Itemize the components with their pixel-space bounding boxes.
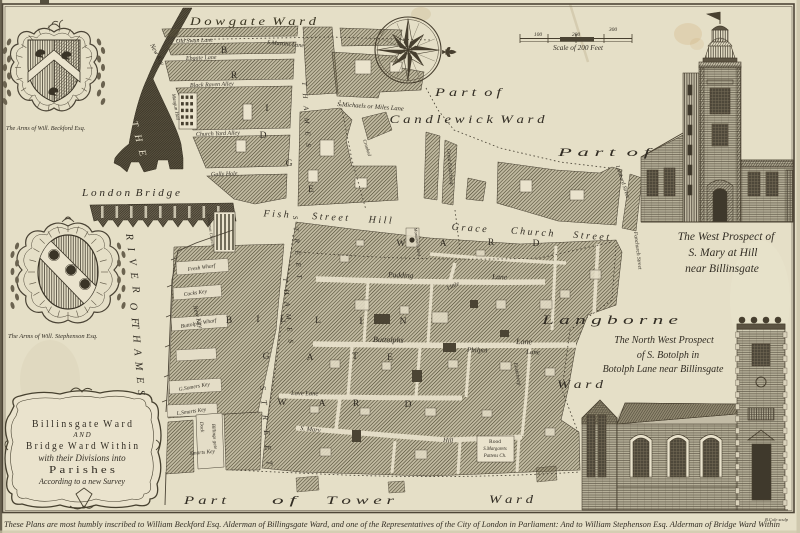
svg-text:L: L <box>315 316 321 326</box>
svg-text:I: I <box>256 315 259 325</box>
svg-text:Gully Hole: Gully Hole <box>211 171 238 178</box>
svg-text:R: R <box>353 399 360 409</box>
svg-text:R: R <box>231 71 238 81</box>
svg-text:B: B <box>226 316 232 326</box>
svg-text:F i s h: F i s h <box>262 208 289 220</box>
svg-text:The Arms of Will. Beckford Esq: The Arms of Will. Beckford Esq. <box>6 125 85 132</box>
svg-text:Pattens Ch.: Pattens Ch. <box>483 454 506 459</box>
svg-text:B i l l i n s g a t e W a r d: B i l l i n s g a t e W a r d <box>32 418 132 430</box>
svg-text:T o w e r: T o w e r <box>326 493 395 507</box>
svg-text:of S. Botolph in: of S. Botolph in <box>637 350 699 361</box>
svg-text:Ebgate Lane: Ebgate Lane <box>185 55 217 62</box>
svg-text:R: R <box>488 238 495 248</box>
svg-text:W: W <box>278 398 287 408</box>
svg-text:P a r t o f: P a r t o f <box>434 85 504 99</box>
svg-text:The West Prospect of: The West Prospect of <box>678 231 776 243</box>
svg-text:A: A <box>307 353 314 363</box>
svg-text:with their Divisions into: with their Divisions into <box>38 453 126 463</box>
svg-text:G: G <box>286 159 293 169</box>
svg-text:S.Margarets: S.Margarets <box>483 447 507 452</box>
svg-text:The Arms of Will. Stephenson E: The Arms of Will. Stephenson Esq. <box>8 333 98 340</box>
svg-text:W a r d: W a r d <box>557 377 604 391</box>
svg-text:D: D <box>405 400 412 410</box>
svg-text:Pudding: Pudding <box>387 270 414 280</box>
svg-text:H i l l: H i l l <box>367 214 392 226</box>
svg-text:D: D <box>533 239 540 249</box>
svg-text:E: E <box>308 185 314 195</box>
svg-text:W a r d: W a r d <box>489 492 534 506</box>
svg-text:I: I <box>359 317 362 327</box>
svg-text:L o n d o n B r i d g e: L o n d o n B r i d g e <box>81 188 181 199</box>
svg-text:N: N <box>400 317 407 327</box>
svg-text:The North West Prospect: The North West Prospect <box>614 335 714 346</box>
svg-text:Lane: Lane <box>515 337 533 346</box>
svg-text:L a n g b o r n e: L a n g b o r n e <box>540 312 678 327</box>
svg-text:Buttolphs: Buttolphs <box>373 335 404 345</box>
svg-text:S. Mary at Hill: S. Mary at Hill <box>689 247 758 259</box>
svg-text:S t r e e t: S t r e e t <box>312 211 349 224</box>
svg-text:Rood: Rood <box>489 439 501 445</box>
svg-text:A N D: A N D <box>72 431 90 439</box>
svg-text:Philpot: Philpot <box>466 346 489 354</box>
svg-text:200: 200 <box>572 32 581 38</box>
svg-text:Dock: Dock <box>198 421 204 434</box>
svg-text:D o w g a t e W a r d: D o w g a t e W a r d <box>189 14 317 28</box>
svg-text:C a n d l e w i c k W a r d: C a n d l e w i c k W a r d <box>390 112 546 126</box>
svg-text:Hill: Hill <box>442 437 454 445</box>
svg-text:near Billinsgate: near Billinsgate <box>685 263 759 275</box>
svg-text:o f: o f <box>272 493 299 507</box>
svg-text:A: A <box>319 399 326 409</box>
svg-text:W: W <box>397 239 406 249</box>
svg-text:A: A <box>440 239 447 249</box>
svg-text:E: E <box>387 353 393 363</box>
svg-text:According to a new Survey: According to a new Survey <box>38 477 125 486</box>
svg-text:Lane: Lane <box>525 348 540 356</box>
svg-text:Scale of 200 Feet: Scale of 200 Feet <box>553 44 604 52</box>
svg-text:These Plans are most humbly in: These Plans are most humbly inscribed to… <box>4 520 780 529</box>
svg-text:300: 300 <box>608 27 618 33</box>
svg-text:P a r i s h e s: P a r i s h e s <box>49 465 115 476</box>
svg-text:100: 100 <box>534 32 543 38</box>
svg-text:T: T <box>352 352 358 362</box>
svg-text:G: G <box>263 352 270 362</box>
svg-text:P a r t o f: P a r t o f <box>556 145 653 159</box>
svg-text:I: I <box>265 104 268 114</box>
svg-text:Lane: Lane <box>491 272 508 282</box>
svg-text:B: B <box>221 46 227 56</box>
svg-text:Love Lane: Love Lane <box>290 390 318 397</box>
svg-text:D: D <box>260 131 267 141</box>
svg-text:Botolph Lane near Billinsgate: Botolph Lane near Billinsgate <box>603 364 724 375</box>
svg-text:B.Cole sculp: B.Cole sculp <box>765 517 789 522</box>
svg-text:B r i d g e W a r d W i t h: B r i d g e W a r d W i t h i n <box>26 440 138 452</box>
svg-text:P a r t: P a r t <box>183 493 227 507</box>
